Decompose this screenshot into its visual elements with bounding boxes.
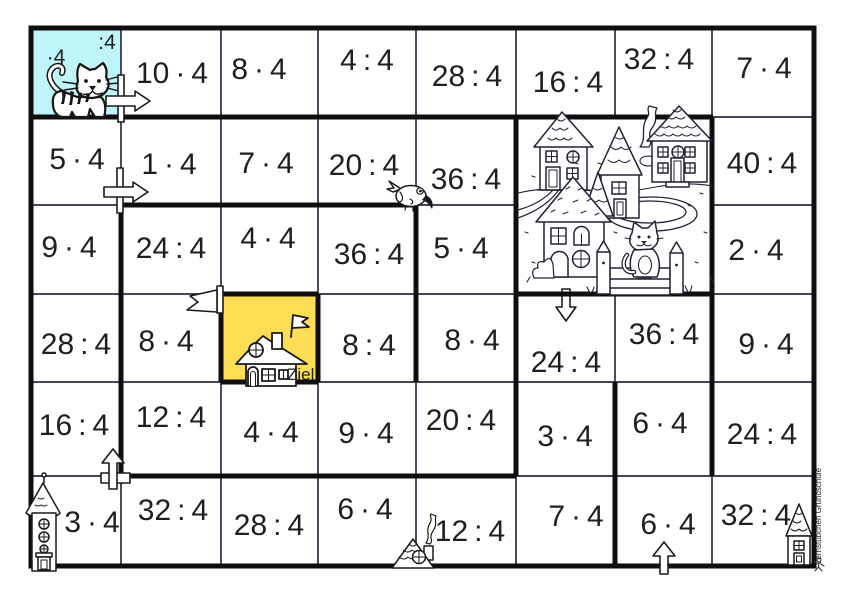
- svg-text:7 · 4: 7 · 4: [238, 147, 293, 180]
- svg-text:16 : 4: 16 : 4: [39, 409, 109, 442]
- svg-text:1 · 4: 1 · 4: [141, 148, 196, 181]
- svg-text:6 · 4: 6 · 4: [337, 493, 392, 526]
- svg-text:20 : 4: 20 : 4: [426, 404, 496, 437]
- svg-text:28 : 4: 28 : 4: [234, 509, 304, 542]
- svg-text:3 · 4: 3 · 4: [537, 420, 592, 453]
- svg-text::4: :4: [98, 31, 116, 54]
- svg-text:12 : 4: 12 : 4: [435, 515, 505, 548]
- svg-text:7 · 4: 7 · 4: [736, 52, 791, 85]
- svg-text:4 · 4: 4 · 4: [243, 416, 298, 449]
- svg-text:9 · 4: 9 · 4: [41, 231, 96, 264]
- svg-text:28 : 4: 28 : 4: [41, 328, 111, 361]
- svg-text:36 : 4: 36 : 4: [629, 318, 699, 351]
- svg-text:12 : 4: 12 : 4: [136, 401, 206, 434]
- svg-text:4 : 4: 4 : 4: [340, 44, 394, 77]
- svg-text:6 · 4: 6 · 4: [632, 407, 687, 440]
- svg-text:36 : 4: 36 : 4: [431, 163, 501, 196]
- svg-text:24 : 4: 24 : 4: [531, 346, 601, 379]
- svg-text:Lernstübchen Grundschule: Lernstübchen Grundschule: [814, 467, 823, 564]
- svg-text:40 : 4: 40 : 4: [727, 147, 797, 180]
- svg-text:9 · 4: 9 · 4: [338, 417, 393, 450]
- svg-text:8 · 4: 8 · 4: [231, 53, 286, 86]
- svg-text:24 : 4: 24 : 4: [136, 232, 206, 265]
- svg-text:10 · 4: 10 · 4: [136, 57, 208, 90]
- svg-text:5 · 4: 5 · 4: [433, 232, 488, 265]
- svg-text:20 : 4: 20 : 4: [329, 149, 399, 182]
- svg-text:28 : 4: 28 : 4: [432, 60, 502, 93]
- svg-text:32 : 4: 32 : 4: [721, 499, 791, 532]
- svg-text:5 · 4: 5 · 4: [49, 143, 104, 176]
- svg-text:2 · 4: 2 · 4: [728, 234, 783, 267]
- svg-text:9 · 4: 9 · 4: [738, 328, 793, 361]
- svg-text:8 : 4: 8 : 4: [342, 329, 396, 362]
- svg-text:16 : 4: 16 : 4: [533, 66, 603, 99]
- svg-text:7 · 4: 7 · 4: [548, 500, 603, 533]
- svg-text:8 · 4: 8 · 4: [138, 325, 193, 358]
- svg-text:8 · 4: 8 · 4: [444, 324, 499, 357]
- svg-text:32 : 4: 32 : 4: [138, 494, 208, 527]
- svg-text:6 · 4: 6 · 4: [640, 508, 695, 541]
- svg-text:4 · 4: 4 · 4: [240, 222, 295, 255]
- svg-text:3 · 4: 3 · 4: [64, 506, 119, 539]
- svg-text:32 : 4: 32 : 4: [624, 43, 694, 76]
- svg-text:Ziel: Ziel: [287, 365, 314, 384]
- svg-text:24 : 4: 24 : 4: [727, 418, 797, 451]
- svg-text:36 : 4: 36 : 4: [334, 238, 404, 271]
